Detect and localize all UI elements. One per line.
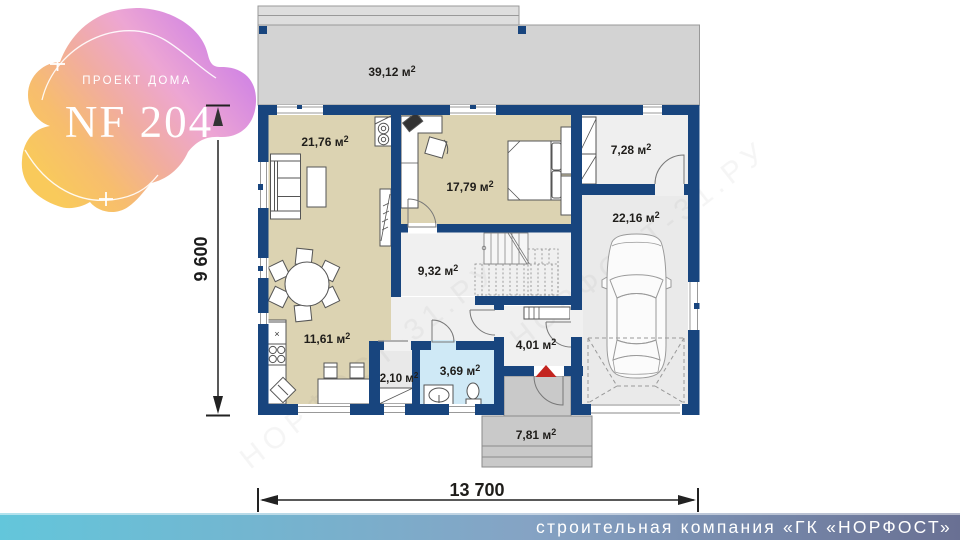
svg-text:3,69 м2: 3,69 м2 bbox=[440, 363, 481, 378]
svg-text:9 600: 9 600 bbox=[191, 236, 211, 281]
svg-text:2,10 м2: 2,10 м2 bbox=[380, 371, 419, 385]
svg-text:7,28 м2: 7,28 м2 bbox=[611, 142, 652, 157]
svg-text:7,81 м2: 7,81 м2 bbox=[516, 427, 557, 442]
svg-text:21,76 м2: 21,76 м2 bbox=[301, 134, 348, 149]
svg-text:9,32 м2: 9,32 м2 bbox=[418, 263, 459, 278]
svg-text:NF 204: NF 204 bbox=[65, 97, 213, 147]
svg-text:22,16 м2: 22,16 м2 bbox=[612, 210, 659, 225]
svg-text:ПРОЕКТ ДОМА: ПРОЕКТ ДОМА bbox=[82, 75, 192, 87]
svg-text:17,79 м2: 17,79 м2 bbox=[446, 179, 493, 194]
svg-text:11,61 м2: 11,61 м2 bbox=[304, 331, 351, 346]
svg-text:×: × bbox=[274, 329, 279, 339]
svg-text:13 700: 13 700 bbox=[449, 480, 504, 500]
svg-text:39,12 м2: 39,12 м2 bbox=[368, 64, 415, 79]
svg-text:4,01 м2: 4,01 м2 bbox=[516, 337, 557, 352]
